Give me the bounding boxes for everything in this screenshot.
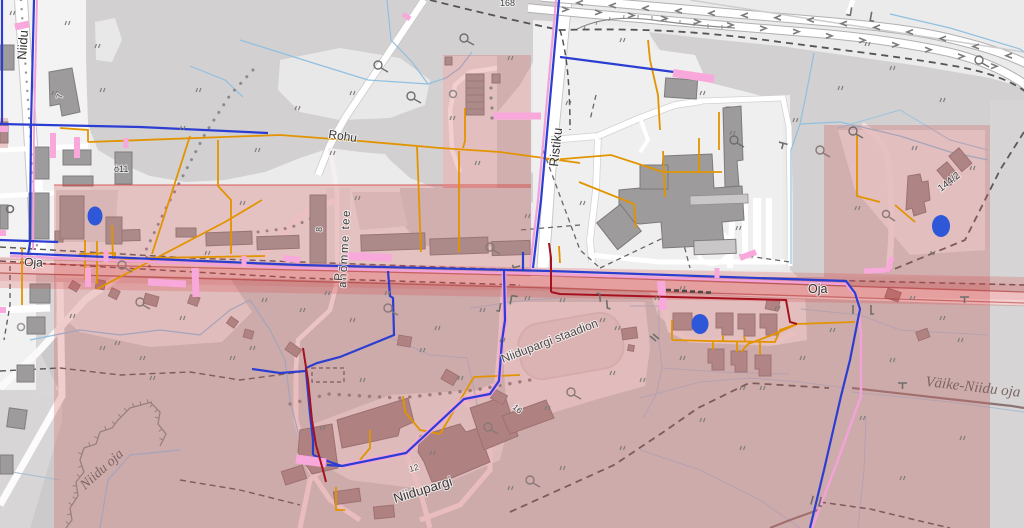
svg-text:Oja: Oja [24, 255, 43, 270]
svg-text:8: 8 [314, 227, 324, 232]
svg-text:Niidu: Niidu [14, 30, 31, 61]
svg-text:ö11: ö11 [114, 164, 128, 174]
svg-text:Oja: Oja [808, 282, 828, 296]
svg-text:P: P [333, 273, 345, 282]
svg-text:168: 168 [500, 0, 515, 8]
